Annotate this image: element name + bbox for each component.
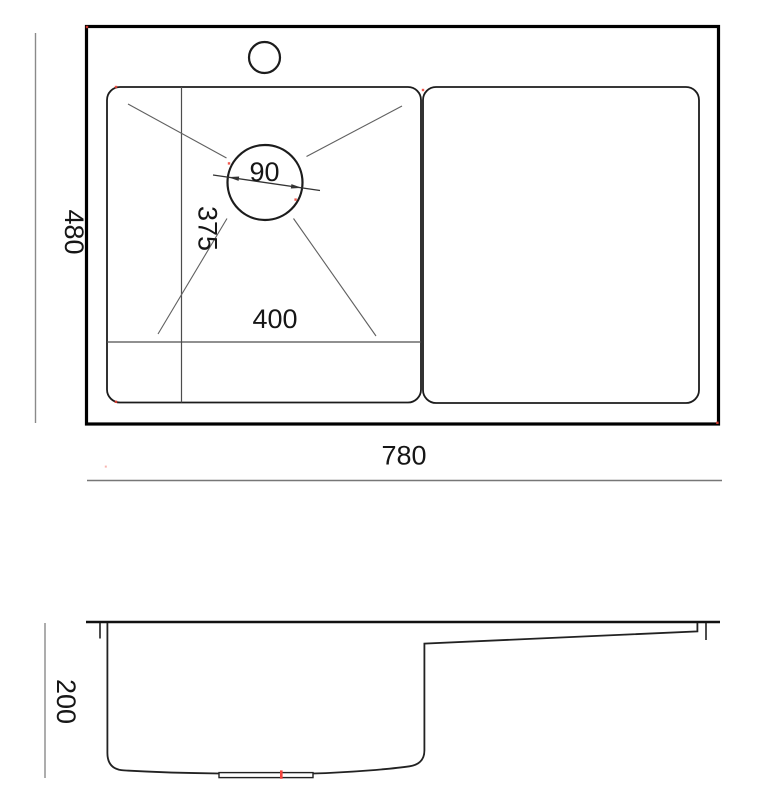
dim-label-overall-depth: 480 [59,209,89,254]
top-view: 90 375 400 480 780 [36,27,723,481]
drawing-canvas: 90 375 400 480 780 200 [0,0,759,800]
snap-marker [105,466,107,468]
dim-label-bowl-width: 400 [252,304,297,334]
snap-marker [422,89,424,91]
side-profile-path [107,623,697,774]
side-view: 200 [45,622,720,779]
snap-marker [294,198,296,200]
dim-label-height: 200 [51,679,81,724]
drain-center-mark [280,770,283,778]
snap-marker [115,401,117,403]
dim-label-bowl-depth: 375 [193,206,223,251]
snap-marker [228,162,230,164]
snap-marker [115,86,117,88]
snap-marker [716,422,718,424]
dim-label-overall-width: 780 [381,441,426,471]
dim-label-drain-diameter: 90 [249,157,279,187]
sink-technical-drawing: 90 375 400 480 780 200 [0,0,759,800]
drain-fitting [219,773,313,778]
snap-marker [86,26,88,28]
